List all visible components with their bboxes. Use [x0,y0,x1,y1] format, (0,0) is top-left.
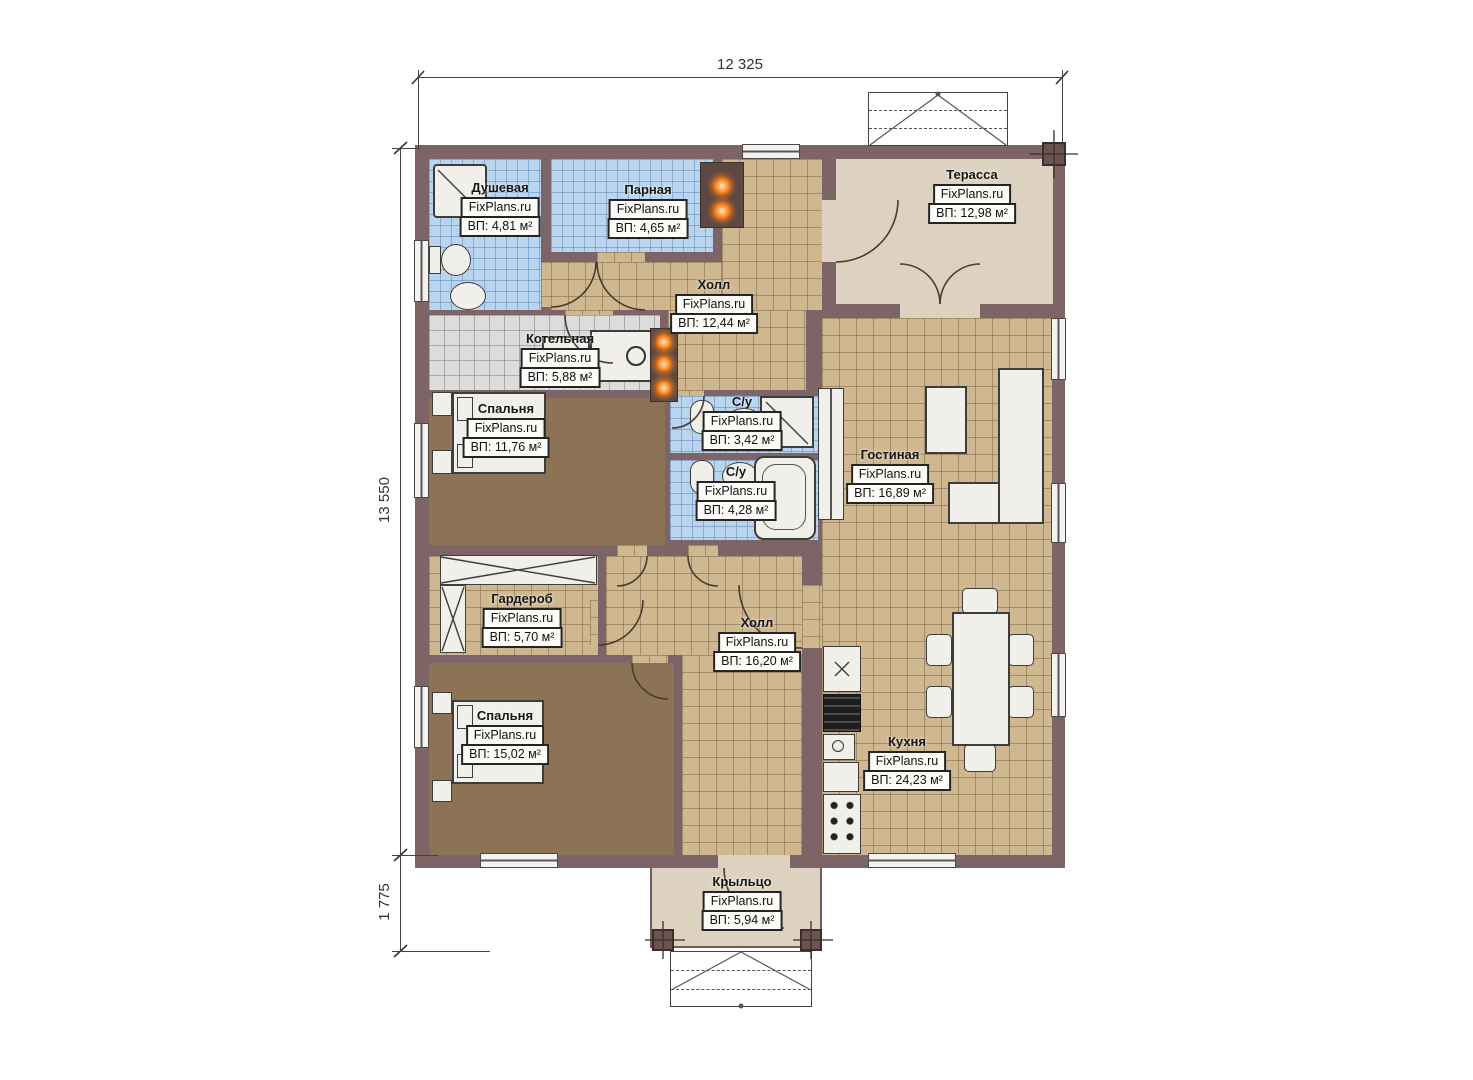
step-line [671,970,811,971]
dim-label-left-lower: 1 775 [376,872,392,932]
area-box: ВП: 11,76 м² [463,437,550,458]
window [414,423,429,498]
entrance-door-gap [718,855,790,868]
window [414,686,429,748]
watermark-box: FixPlans.ru [703,411,782,432]
sink [450,282,486,310]
room-label-bedroom-upper: Спальня FixPlans.ru ВП: 11,76 м² [463,401,550,458]
terrace-double-door-gap [900,304,980,318]
room-label-su-lower: С/у FixPlans.ru ВП: 4,28 м² [696,464,777,521]
dim-extension-line [392,951,490,952]
room-name: Холл [698,277,731,292]
dining-chair [926,634,952,666]
watermark-box: FixPlans.ru [851,464,930,485]
sauna-heater-glow-icon [713,202,731,220]
watermark-box: FixPlans.ru [718,632,797,653]
sofa-back [998,368,1044,524]
boiler-dial-icon [626,346,646,366]
tv-stand [818,388,844,520]
room-label-terrace: Терасса FixPlans.ru ВП: 12,98 м² [928,167,1016,224]
watermark-box: FixPlans.ru [466,725,545,746]
room-name: Парная [624,182,671,197]
room-name: Котельная [526,331,594,346]
room-label-living: Гостиная FixPlans.ru ВП: 16,89 м² [846,447,934,504]
dim-label-top: 12 325 [690,56,790,73]
room-name: Душевая [471,180,528,195]
area-box: ВП: 3,42 м² [702,430,783,451]
column-marker [652,929,674,951]
bedroom-upper-door-gap [617,545,647,556]
dim-line-top [418,77,1062,78]
area-box: ВП: 15,02 м² [461,744,549,765]
room-label-kotelnaya: Котельная FixPlans.ru ВП: 5,88 м² [520,331,601,388]
watermark-box: FixPlans.ru [461,197,540,218]
kitchen-fridge [823,694,861,732]
parnaya-door-gap [597,252,645,262]
step-line [671,989,811,990]
watermark-box: FixPlans.ru [703,891,782,912]
watermark-box: FixPlans.ru [697,481,776,502]
area-box: ВП: 4,65 м² [608,218,689,239]
room-label-hall-upper: Холл FixPlans.ru ВП: 12,44 м² [670,277,758,334]
window [1051,483,1066,543]
terrace-door-gap [822,200,836,262]
watermark-box: FixPlans.ru [483,608,562,629]
room-name: Терасса [946,167,998,182]
watermark-box: FixPlans.ru [868,751,947,772]
room-label-garderob: Гардероб FixPlans.ru ВП: 5,70 м² [482,591,563,648]
area-box: ВП: 12,98 м² [928,203,1016,224]
area-box: ВП: 16,89 м² [846,483,934,504]
dim-line-left [400,148,401,855]
dim-line-left-lower [400,855,401,951]
room-label-dushevaya: Душевая FixPlans.ru ВП: 4,81 м² [460,180,541,237]
dim-extension-line [418,70,419,148]
room-name: Холл [741,615,774,630]
watermark-box: FixPlans.ru [675,294,754,315]
window [742,144,800,159]
radiator-glow-icon [656,334,672,350]
room-name: С/у [732,394,752,409]
dining-chair [1008,634,1034,666]
kotelnaya-door-gap [565,310,613,315]
wardrobe [440,555,597,585]
window [414,240,429,302]
window [480,853,558,868]
room-name: Спальня [477,708,533,723]
dim-extension-line [392,148,420,149]
room-label-su-upper: С/у FixPlans.ru ВП: 3,42 м² [702,394,783,451]
room-name: Гардероб [491,591,552,606]
window [1051,318,1066,380]
room-label-hall-lower: Холл FixPlans.ru ВП: 16,20 м² [713,615,801,672]
dushevaya-door-gap [541,262,551,307]
step-line [869,110,1007,111]
dining-chair [964,744,996,772]
nightstand [432,392,452,416]
room-name: Гостиная [861,447,920,462]
kitchen-appliance-dial-icon [832,740,844,752]
dim-extension-line [1062,70,1063,148]
watermark-box: FixPlans.ru [467,418,546,439]
room-name: С/у [726,464,746,479]
su-lower-door-gap [688,545,718,556]
watermark-box: FixPlans.ru [609,199,688,220]
bedroom-lower-door-gap [632,655,668,663]
room-name: Крыльцо [712,874,771,889]
area-box: ВП: 5,88 м² [520,367,601,388]
room-name: Кухня [888,734,926,749]
radiator-glow-icon [656,380,672,396]
nightstand [432,780,452,802]
window [1051,653,1066,717]
porch-steps [670,951,812,1007]
area-box: ВП: 12,44 м² [670,313,758,334]
kitchen-stove [823,794,861,854]
area-box: ВП: 5,94 м² [702,910,783,931]
area-box: ВП: 4,28 м² [696,500,777,521]
hall-lower-floor-b [682,655,802,855]
sauna-heater-glow-icon [713,177,731,195]
area-box: ВП: 24,23 м² [863,770,951,791]
dim-label-left: 13 550 [376,470,392,530]
radiator-glow-icon [656,356,672,372]
garderob-door-gap [590,600,598,645]
wardrobe [440,585,466,653]
room-name: Спальня [478,401,534,416]
watermark-box: FixPlans.ru [933,184,1012,205]
toilet-bowl [441,244,471,276]
window [868,853,956,868]
area-box: ВП: 16,20 м² [713,651,801,672]
dining-chair [926,686,952,718]
step-line [869,128,1007,129]
kitchen-cabinet [823,762,859,792]
room-label-kitchen: Кухня FixPlans.ru ВП: 24,23 м² [863,734,951,791]
room-label-bedroom-lower: Спальня FixPlans.ru ВП: 15,02 м² [461,708,549,765]
dim-extension-line [392,855,438,856]
room-label-porch: Крыльцо FixPlans.ru ВП: 5,94 м² [702,874,783,931]
nightstand [432,692,452,714]
dining-chair [1008,686,1034,718]
coffee-table [925,386,967,454]
floor-plan-canvas: Душевая FixPlans.ru ВП: 4,81 м² Парная F… [0,0,1473,1080]
sofa-seat [948,482,1000,524]
dining-table [952,612,1010,746]
watermark-box: FixPlans.ru [521,348,600,369]
kitchen-sink-cabinet [823,646,861,692]
toilet-tank [429,246,441,274]
dining-chair [962,588,998,614]
nightstand [432,450,452,474]
column-marker [800,929,822,951]
hall-living-door-gap [802,585,822,648]
terrace-steps [868,92,1008,146]
area-box: ВП: 5,70 м² [482,627,563,648]
area-box: ВП: 4,81 м² [460,216,541,237]
room-label-parnaya: Парная FixPlans.ru ВП: 4,65 м² [608,182,689,239]
